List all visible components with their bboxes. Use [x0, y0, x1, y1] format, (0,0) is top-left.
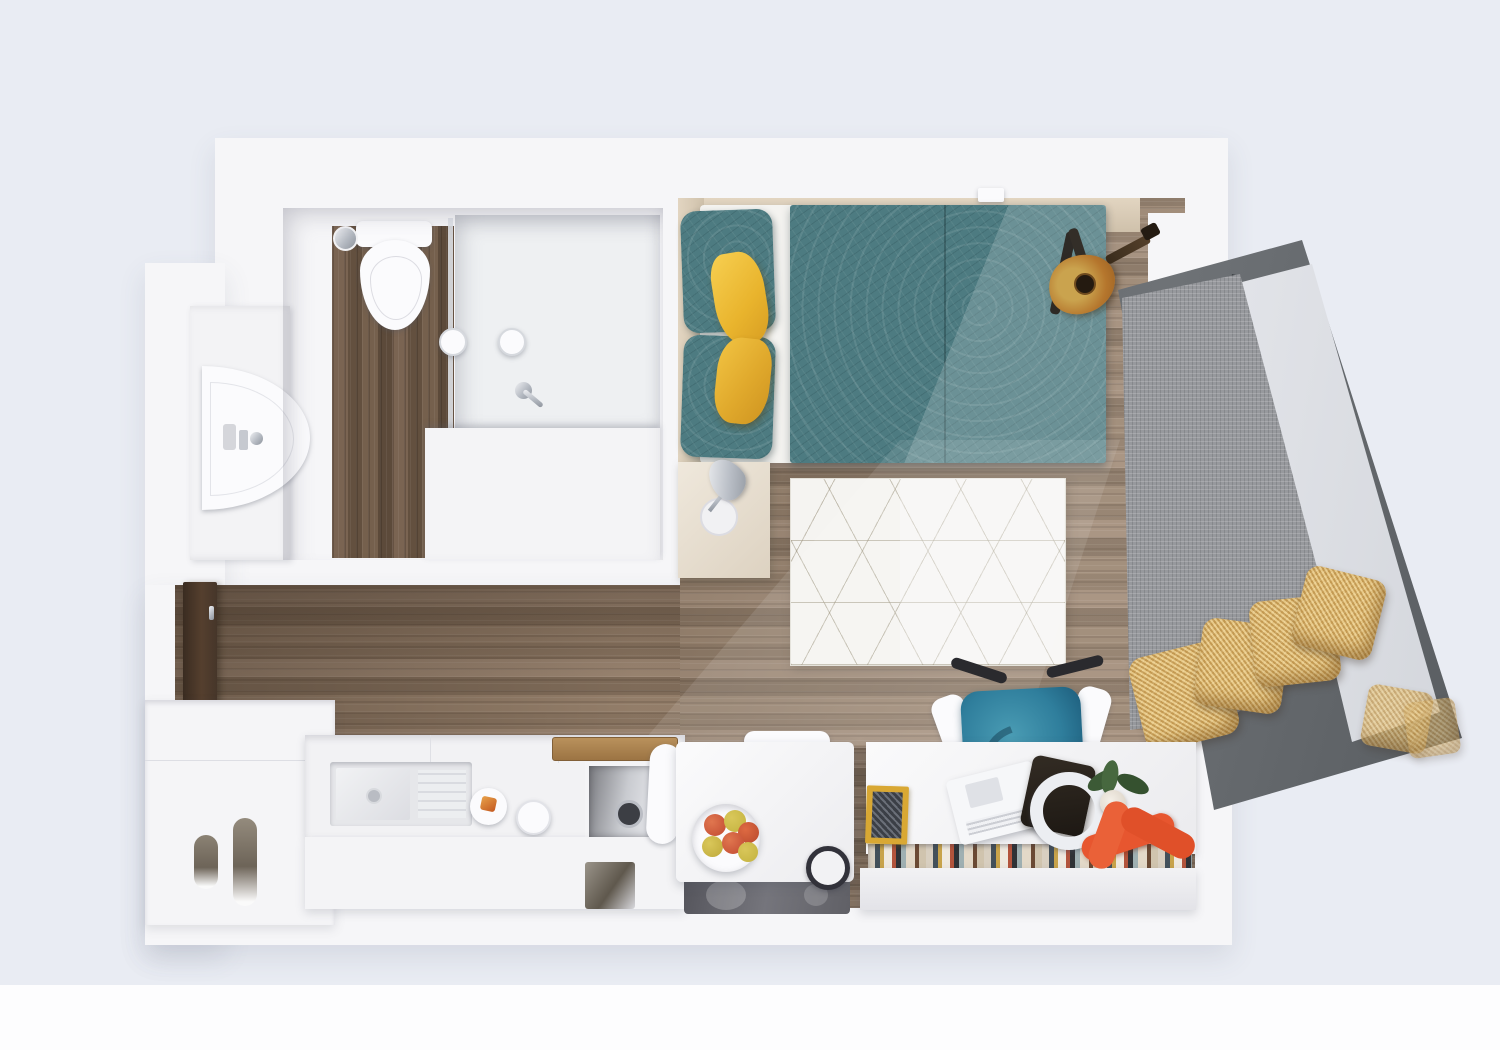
counter-seam-1	[430, 735, 431, 765]
mug	[806, 846, 850, 890]
geometric-rug	[790, 478, 1066, 666]
apple-6	[738, 842, 758, 862]
yellow-book	[865, 785, 909, 844]
door-handle	[209, 606, 214, 620]
floor-plan-render	[0, 0, 1500, 1050]
shelf-reflection-1	[706, 880, 746, 910]
room-bathroom	[215, 138, 685, 585]
guitar-soundhole	[1074, 273, 1096, 295]
book-row	[868, 844, 1192, 870]
chair-caster-bar-1	[950, 656, 1009, 684]
background-bottom-strip	[0, 985, 1500, 1050]
kettle	[516, 800, 551, 835]
reflected-cushion-2	[1402, 697, 1461, 760]
table-lamp	[692, 458, 762, 538]
toiletry-tube	[239, 430, 248, 450]
toast	[480, 796, 498, 813]
sink-drain	[366, 788, 382, 804]
shower-enclosure	[455, 215, 660, 430]
lamp-base	[700, 498, 738, 536]
apple-4	[702, 836, 723, 857]
shower-soap-dish	[439, 328, 467, 356]
desk-front-panel	[860, 868, 1196, 910]
laptop-lid-logo	[965, 777, 1004, 809]
cabinet-handle-cutout	[585, 862, 635, 909]
sink-drainer	[418, 770, 466, 818]
shower-head-plate	[498, 328, 526, 356]
basin-faucet	[250, 432, 263, 445]
lamp-shade	[701, 452, 753, 506]
kitchen-sink	[330, 762, 472, 826]
plate-with-toast	[470, 788, 507, 825]
light-switch	[978, 188, 1004, 202]
chair-caster-bar-2	[1046, 654, 1105, 679]
niche-jar	[615, 800, 643, 828]
wardrobe-handle-slot-1	[194, 835, 218, 889]
toilet-roll-holder	[333, 226, 358, 251]
book-cover-art	[871, 791, 903, 838]
toiletry-bottle	[223, 424, 236, 450]
shower-glass-panel	[448, 218, 453, 430]
apple-1	[704, 814, 726, 836]
shower-half-wall	[425, 428, 660, 560]
wardrobe-handle-slot-2	[233, 818, 257, 906]
